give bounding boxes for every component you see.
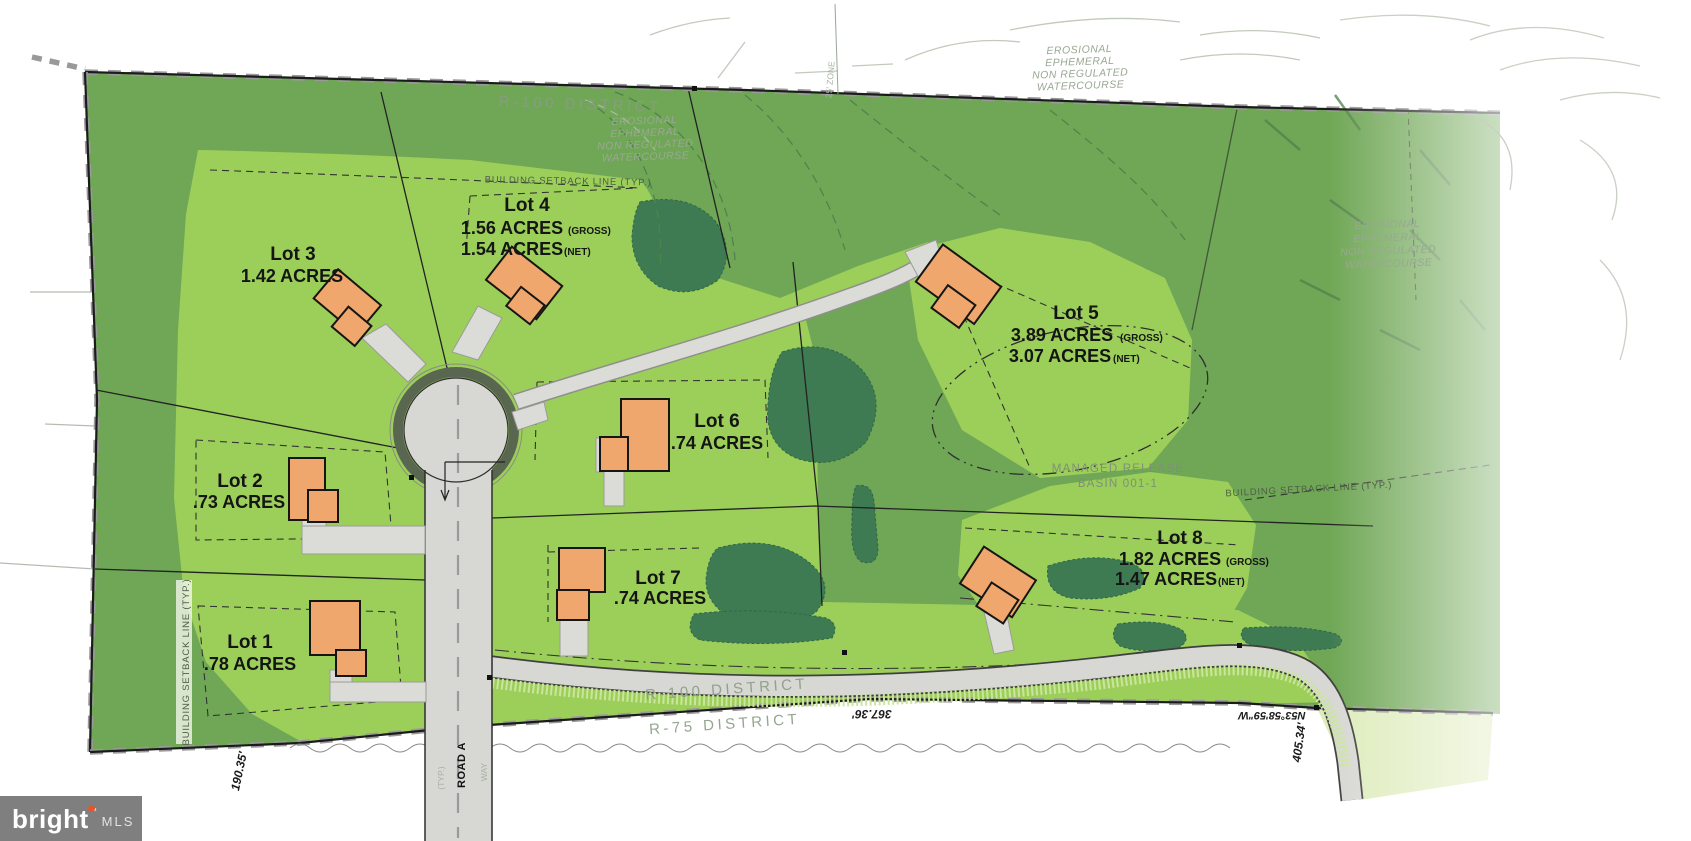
road-a-label: ROAD A <box>456 742 468 788</box>
brightmls-accent-dot-icon <box>88 805 95 812</box>
brightmls-watermark: bright ™ MLS <box>0 796 142 841</box>
driveway <box>560 618 588 656</box>
lot-2-name: Lot 2 <box>217 471 262 492</box>
district-line-extension <box>0 563 95 569</box>
basin-label-line2: BASIN 001-1 <box>1078 478 1158 490</box>
setback-label-left: BUILDING SETBACK LINE (TYP.) <box>176 579 192 746</box>
brightmls-suffix: MLS <box>102 814 135 829</box>
lot-8-gross: 1.82 ACRES <box>1119 549 1221 569</box>
lot-2-acres: .73 ACRES <box>193 492 285 512</box>
lot-6-name: Lot 6 <box>694 411 739 432</box>
basin-label-line1: MANAGED RELEASE <box>1052 463 1184 475</box>
road-way-note: WAY <box>479 762 489 781</box>
brightmls-brand: bright <box>12 806 89 832</box>
dimension-south: 367.36' <box>851 707 892 721</box>
lot-5-net: 3.07 ACRES <box>1009 346 1111 366</box>
lot-4-name: Lot 4 <box>504 195 550 216</box>
lot-7-acres: .74 ACRES <box>614 588 706 608</box>
site-plan-canvas: R-100 DISTRICT R-100 DISTRICT R-75 DISTR… <box>0 0 1691 841</box>
lot-4-net-tag: (NET) <box>564 247 591 258</box>
lot-5-gross-tag: (GROSS) <box>1120 333 1163 344</box>
driveway <box>302 526 425 554</box>
lot-7-name: Lot 7 <box>635 568 680 589</box>
lot-4-gross: 1.56 ACRES <box>461 218 563 238</box>
lot-1-name: Lot 1 <box>227 632 273 653</box>
lot-6-acres: .74 ACRES <box>671 433 763 453</box>
watercourse-note-topright: EROSIONAL EPHEMERAL NON REGULATED WATERC… <box>1031 42 1129 93</box>
lot-8-net-tag: (NET) <box>1218 577 1245 588</box>
watercourse-line: WATERCOURSE <box>1037 78 1125 93</box>
dimension-southeast: 405.34' <box>1289 721 1309 764</box>
lot-5-gross: 3.89 ACRES <box>1011 325 1113 345</box>
lot-4-gross-tag: (GROSS) <box>568 226 611 237</box>
lot-5-name: Lot 5 <box>1053 303 1099 324</box>
lot-3-name: Lot 3 <box>270 244 315 265</box>
lot-4-net: 1.54 ACRES <box>461 239 563 259</box>
watercourse-line: EROSIONAL <box>1354 218 1420 232</box>
site-plan-drawing: R-100 DISTRICT R-100 DISTRICT R-75 DISTR… <box>0 0 1691 841</box>
lot-3-acres: 1.42 ACRES <box>241 266 343 286</box>
dimension-west: 190.35' <box>228 749 250 792</box>
lot-8-gross-tag: (GROSS) <box>1226 557 1269 568</box>
bearing-label: N53°58'59"W <box>1237 709 1306 721</box>
driveway <box>604 470 624 506</box>
road-typ-note: (TYP.) <box>436 766 446 790</box>
lot-8-net: 1.47 ACRES <box>1115 569 1217 589</box>
setback-label-text: BUILDING SETBACK LINE (TYP.) <box>181 579 192 746</box>
boundary-tick <box>45 424 95 426</box>
fade-overlay <box>1330 0 1691 841</box>
lot-1-acres: .78 ACRES <box>204 654 296 674</box>
lot-5-net-tag: (NET) <box>1113 354 1140 365</box>
lot-8-name: Lot 8 <box>1157 528 1202 549</box>
driveway <box>330 682 426 702</box>
watercourse-line: EPHEMERAL <box>1353 231 1423 245</box>
